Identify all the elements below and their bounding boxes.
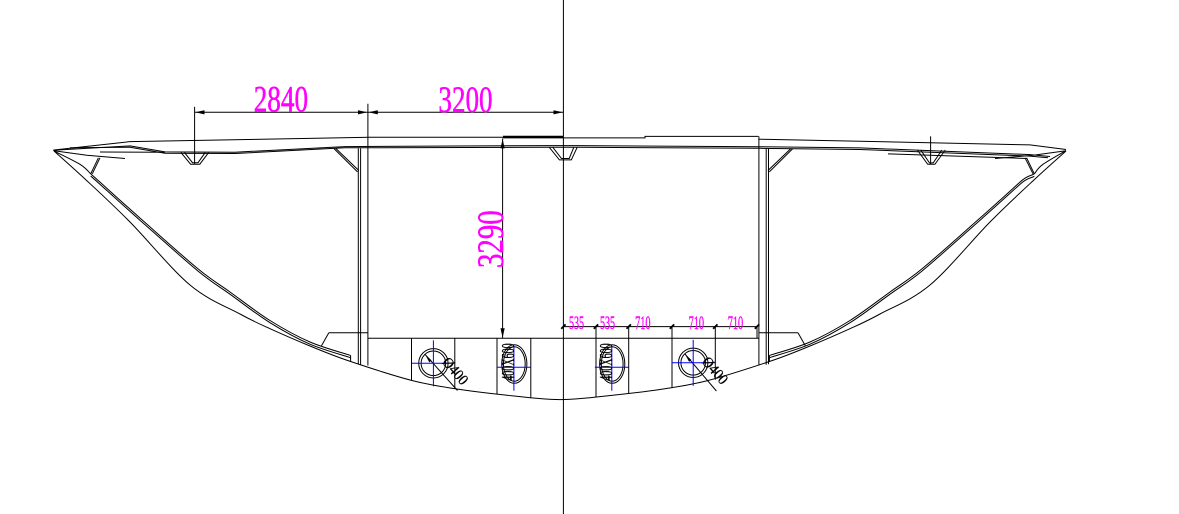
svg-text:710: 710 — [635, 314, 651, 334]
svg-text:710: 710 — [689, 314, 705, 334]
svg-text:Ø400: Ø400 — [698, 354, 730, 388]
svg-text:535: 535 — [600, 314, 615, 334]
svg-text:Ø400: Ø400 — [438, 355, 470, 389]
svg-text:3200: 3200 — [438, 80, 492, 121]
svg-text:535: 535 — [569, 314, 584, 334]
svg-text:400X600: 400X600 — [596, 343, 616, 381]
svg-text:3290: 3290 — [471, 210, 512, 268]
svg-text:710: 710 — [728, 314, 744, 334]
svg-text:400X600: 400X600 — [498, 343, 518, 381]
svg-text:2840: 2840 — [254, 80, 308, 121]
